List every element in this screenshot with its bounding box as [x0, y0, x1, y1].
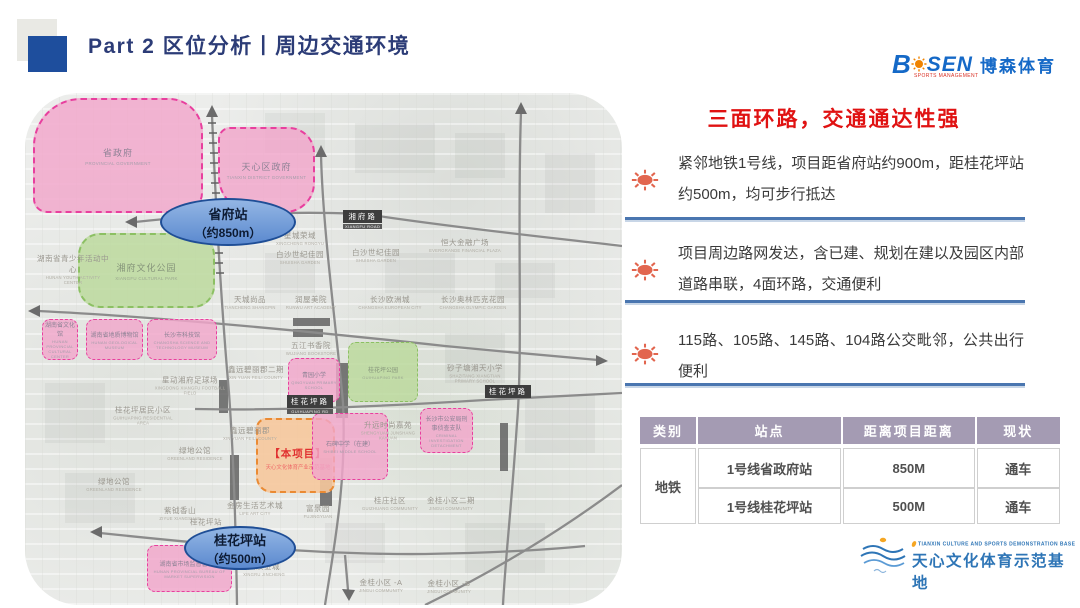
bosen-tagline: SPORTS MANAGEMENT [914, 73, 979, 79]
map-place-label: 升远时尚嘉苑SHENGYUAN JUNSHANG KAYUAN [352, 420, 424, 441]
sun-icon [630, 168, 660, 192]
zone-guihuaping-park: 桂花坪公园 GUIHUAPING PARK [348, 342, 418, 402]
divider-line-3 [625, 383, 1025, 386]
bosen-logo: B SEN SPORTS MANAGEMENT 博森体育 [892, 46, 1056, 82]
bosen-cn: 博森体育 [980, 52, 1056, 77]
map-place-label: 白沙世纪佳园SHUISHA GARDEN [352, 247, 400, 263]
map-place-label: 金桂小区二期JINGUI COMMUNITY [427, 495, 475, 511]
cell-distance: 500M [843, 488, 975, 524]
sun-icon [630, 258, 660, 282]
map-place-label: 星动湘府足球场XINGDONG XIANGFU FOOTBALL FIELD [154, 375, 226, 396]
map-place-label: 长沙奥林匹克花园CHANGSHA OLYMPIC GARDEN [440, 294, 507, 310]
divider-line-2 [625, 300, 1025, 303]
tianxin-wave-logo-icon [858, 534, 908, 580]
slide: Part 2 区位分析丨周边交通环境 B SEN SPORTS MANAGEME… [0, 0, 1080, 608]
cell-station: 1号线省政府站 [698, 448, 841, 488]
section-headline: 三面环路，交通通达性强 [628, 103, 1040, 133]
map-place-label: 润屋美院RUNWU ART ACADEMY [286, 294, 336, 310]
road-label-guihuaping-road-east: 桂花坪路 [485, 385, 531, 398]
map-place-label: 天城尚品TIANCHENG SHANGPIN [224, 294, 275, 310]
zone-hunan-cultural-center: 湖南省文化馆 HUNAN PROVINCIAL CULTURAL CENTER [42, 319, 78, 360]
zone-criminal-investigation-detachment: 长沙市公安局刑事侦查支队 CRIMINAL INVESTIGATION DETA… [420, 408, 473, 453]
bosen-logo-b: B [892, 51, 911, 77]
divider-line-1 [625, 217, 1025, 220]
bosen-sun-icon [911, 56, 927, 72]
cell-status: 通车 [977, 448, 1060, 488]
cell-distance: 850M [843, 448, 975, 488]
map-place-label: 金桂小区 -BJINGUI COMMUNITY [427, 578, 471, 594]
map-place-label: 桂庄社区GUIZHUANG COMMUNITY [362, 495, 418, 511]
deco-square-blue [28, 36, 67, 72]
station-callout-guihuaping: 桂花坪站 （约500m） [184, 526, 296, 570]
map-place-label: 富景园FUJINGYUAN [304, 503, 333, 519]
bullet-text-3: 115路、105路、145路、104路公交毗邻，公共出行便利 [678, 325, 1024, 387]
location-map: 省政府 PROVINCIAL GOVERNMENT 天心区政府 TIANXIN … [25, 93, 622, 605]
map-place-label: 金桂小区 -AJINGUI COMMUNITY [359, 577, 403, 593]
map-place-label: 鑫远碧丽郡二期XIN YUAN FEILI COUNTY [228, 364, 284, 380]
map-place-label: 鑫远碧丽郡XIN YUAN FEILI COUNTY [223, 425, 277, 441]
col-header-station: 站点 [698, 417, 841, 444]
zone-provincial-government: 省政府 PROVINCIAL GOVERNMENT [33, 98, 203, 213]
map-place-label: 白沙世纪佳园SHUISHA GARDEN [276, 249, 324, 265]
map-place-label: 金房生活艺术城LIFE ART CITY [227, 500, 283, 516]
road-label-xiangfu-road: 湘府路 XIANGFU ROAD [343, 210, 382, 229]
flame-icon [911, 541, 916, 548]
map-place-label: 绿地公馆GREENLAND RESIDENCE [86, 476, 141, 492]
road-label-guihuaping-road: 桂花坪路 GUIHUAPING RD [287, 395, 333, 414]
zone-geological-museum: 湖南省地质博物馆 HUNAN GEOLOGICAL MUSEUM [86, 319, 143, 360]
col-header-category: 类别 [640, 417, 696, 444]
map-place-label: 绿地公馆GREENLAND RESIDENCE [167, 445, 222, 461]
map-place-label: 桂花坪站 [190, 517, 222, 528]
page-title: Part 2 区位分析丨周边交通环境 [88, 30, 410, 60]
station-callout-shengfu: 省府站 （约850m） [160, 198, 296, 246]
sun-icon [630, 342, 660, 366]
map-place-label: 恒大金融广场EVERGRANDE FINANCIAL PLAZA [429, 237, 501, 253]
metro-distance-table: 类别 站点 距离项目距离 现状 地铁 1号线省政府站 850M 通车 1号线桂花… [638, 417, 1062, 524]
table-row: 地铁 1号线省政府站 850M 通车 [640, 448, 1060, 488]
map-place-label: 湖南省青少年活动中心HUNAN YOUTH ACTIVITY CENTER [37, 253, 109, 285]
zone-science-museum: 长沙市科技馆 CHANGSHA SCIENCE AND TECHNOLOGY M… [147, 319, 217, 360]
map-place-label: 桂花坪居民小区GUIHUAPING RESIDENTIAL AREA [107, 405, 179, 426]
map-place-label: 五江书香院WUJIANG BOOKSTORE [286, 340, 336, 356]
cell-status: 通车 [977, 488, 1060, 524]
map-place-label: 长沙欧洲城CHANGSHA EUROPEAN CITY [358, 294, 421, 310]
bullet-text-1: 紧邻地铁1号线，项目距省府站约900m，距桂花坪站约500m，均可步行抵达 [678, 148, 1024, 210]
table-header-row: 类别 站点 距离项目距离 现状 [640, 417, 1060, 444]
table-row: 1号线桂花坪站 500M 通车 [640, 488, 1060, 524]
map-place-label: 砂子塘湘天小学SHAZITANG XIANGTIAN PRIMARY SCHOO… [439, 363, 511, 384]
col-header-distance: 距离项目距离 [843, 417, 975, 444]
cell-station: 1号线桂花坪站 [698, 488, 841, 524]
footer-logo-en: TIANXIN CULTURE AND SPORTS DEMONSTRATION… [912, 541, 1075, 547]
bosen-logo-sen: SEN [927, 54, 973, 75]
footer-logo-cn: 天心文化体育示范基地 [912, 549, 1080, 593]
cell-category: 地铁 [640, 448, 696, 524]
bullet-text-2: 项目周边路网发达，含已建、规划在建以及园区内部道路串联，4面环路，交通便利 [678, 238, 1024, 300]
col-header-status: 现状 [977, 417, 1060, 444]
